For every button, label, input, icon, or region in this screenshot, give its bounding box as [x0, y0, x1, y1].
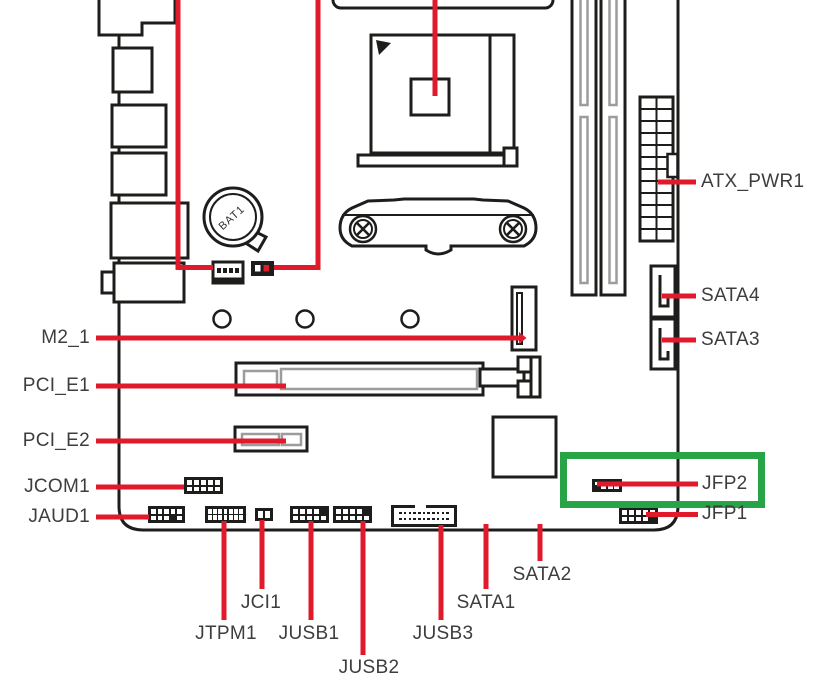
dimm-slot-1-groove-top [581, 0, 588, 105]
jcom1-header [184, 477, 223, 494]
cooler-frame-top [333, 0, 553, 8]
dimm-slot-1-groove-bottom [581, 117, 588, 283]
label-sata3: SATA3 [701, 329, 760, 351]
io-port-5 [111, 203, 188, 258]
label-jci1: JCI1 [241, 592, 281, 614]
clear-cmos-jumper [251, 261, 274, 276]
sata-ports-vertical [651, 266, 675, 369]
io-port-3 [112, 105, 166, 147]
label-atx-pwr1: ATX_PWR1 [701, 171, 804, 193]
fan-pin-1 [217, 268, 221, 273]
cpu-shelf-step [504, 148, 517, 166]
chipset [493, 417, 556, 477]
fan-pin-4 [235, 268, 239, 273]
jumper-pin-2 [264, 265, 270, 272]
jfp1-header [619, 507, 658, 524]
atx-power-connector [640, 97, 678, 241]
fan-pin-3 [229, 268, 233, 273]
label-sata4: SATA4 [701, 285, 760, 307]
label-jusb3: JUSB3 [413, 623, 474, 645]
pcie1-groove-long [281, 369, 477, 389]
pcie1-groove-short [244, 371, 277, 387]
jusb3-notch [415, 503, 426, 509]
sata4-port [651, 266, 675, 317]
pcie2-groove-left [242, 434, 279, 445]
cooler-retention-bracket [340, 199, 536, 254]
sata3-port [651, 319, 675, 369]
jci1-header [255, 508, 273, 521]
label-m2-1: M2_1 [41, 327, 90, 349]
pcie2-slot [235, 427, 307, 451]
jumper-pin-1 [255, 265, 261, 272]
label-jusb2: JUSB2 [339, 657, 400, 679]
label-jcom1: JCOM1 [24, 476, 90, 498]
dimm-slot-2-groove-top [610, 0, 617, 105]
io-port-2 [113, 48, 152, 92]
jumper-body [251, 261, 274, 276]
dimm-slot-2-groove-bottom [610, 117, 617, 283]
fan-header [213, 262, 243, 283]
mount-hole-3 [402, 311, 419, 328]
jusb2-header [333, 506, 372, 523]
m2-slot-body [512, 287, 536, 350]
jusb1-header [290, 506, 329, 523]
label-pci-e1: PCI_E1 [23, 375, 90, 397]
label-jusb1: JUSB1 [279, 623, 340, 645]
cpu-center-square [411, 79, 449, 115]
cpu-socket [358, 35, 517, 166]
motherboard-diagram: BAT1 M2_1 PCI_E1 PCI_E2 JCOM1 JAUD1 ATX_… [0, 0, 819, 699]
atx-power-latch [668, 154, 678, 177]
mount-hole-2 [297, 311, 314, 328]
mount-hole-1 [214, 311, 231, 328]
jaud1-header [148, 506, 185, 523]
label-jfp2: JFP2 [702, 473, 748, 495]
board-line-art [0, 0, 819, 699]
label-jaud1: JAUD1 [28, 506, 90, 528]
label-pci-e2: PCI_E2 [23, 430, 90, 452]
m2-slot [512, 287, 536, 350]
label-sata1: SATA1 [457, 592, 516, 614]
fan-header-latch [213, 278, 243, 284]
fan-pin-2 [223, 268, 227, 273]
jtpm1-header [205, 506, 246, 523]
label-sata2: SATA2 [513, 564, 572, 586]
label-jtpm1: JTPM1 [195, 623, 257, 645]
pcie2-groove-right [282, 434, 301, 445]
label-jfp1: JFP1 [702, 503, 748, 525]
cpu-shelf [358, 155, 504, 166]
io-port-4 [112, 153, 166, 195]
io-port-audio [114, 263, 184, 302]
pcie1-latch-back [531, 357, 540, 397]
